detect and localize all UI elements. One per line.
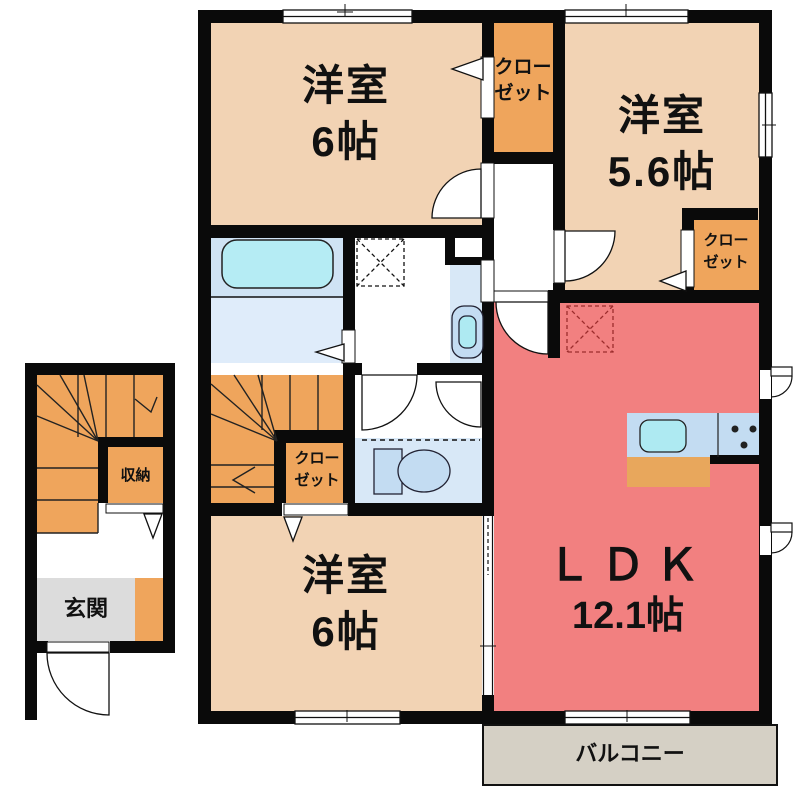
wall <box>548 303 560 358</box>
room-washroom <box>211 297 343 363</box>
entrance-step <box>135 578 163 641</box>
closet-line1: クロー <box>694 230 758 252</box>
wall <box>355 363 362 375</box>
wall <box>211 503 282 516</box>
wall <box>25 363 37 720</box>
label-closet-right: クロー ゼット <box>694 230 758 274</box>
wall <box>274 430 286 503</box>
closet-line1: クロー <box>286 448 348 470</box>
wall <box>163 363 175 653</box>
wall <box>198 711 772 724</box>
room-toilet <box>355 438 482 503</box>
room-size: 5.6帖 <box>542 144 782 200</box>
wall <box>482 10 494 57</box>
wall <box>455 257 494 265</box>
wall <box>25 363 175 375</box>
closet-line1: クロー <box>491 55 555 81</box>
label-bedroom-bottom: 洋室 6帖 <box>226 548 466 660</box>
room-size: 12.1帖 <box>508 592 748 640</box>
label-bedroom-top-right: 洋室 5.6帖 <box>542 88 782 200</box>
wall <box>198 10 211 724</box>
stairs-annex-lower <box>37 437 98 533</box>
kitchen-counter <box>627 413 762 457</box>
wall <box>37 641 48 653</box>
room-size: 6帖 <box>226 604 466 660</box>
closet-line2: ゼット <box>694 252 758 274</box>
wall <box>445 232 455 265</box>
label-entrance: 玄関 <box>37 596 135 622</box>
wall <box>110 641 175 653</box>
wall <box>710 455 762 464</box>
closet-line2: ゼット <box>491 81 555 107</box>
room-name: 洋室 <box>542 88 782 144</box>
wall <box>348 503 494 516</box>
wall <box>417 363 494 375</box>
kitchen-cabinet <box>627 457 710 487</box>
room-name: 洋室 <box>226 548 466 604</box>
room-ldk <box>494 302 759 711</box>
room-name: ＬＤＫ <box>508 540 748 592</box>
washbasin-area <box>450 265 482 363</box>
label-balcony: バルコニー <box>482 741 778 767</box>
wall <box>98 437 108 503</box>
room-bathroom <box>211 238 343 297</box>
label-storage: 収納 <box>108 466 163 486</box>
wall <box>548 290 772 303</box>
stairs-annex-upper <box>37 375 163 437</box>
wall <box>343 232 355 330</box>
wall <box>682 208 694 232</box>
label-closet-top: クロー ゼット <box>491 55 555 107</box>
closet-line2: ゼット <box>286 470 348 492</box>
label-closet-middle: クロー ゼット <box>286 448 348 492</box>
label-ldk: ＬＤＫ 12.1帖 <box>508 540 748 640</box>
room-name: 洋室 <box>226 58 466 114</box>
floor-plan: 洋室 6帖 洋室 5.6帖 洋室 6帖 ＬＤＫ 12.1帖 クロー ゼット クロ… <box>0 0 800 800</box>
room-size: 6帖 <box>226 114 466 170</box>
washing-machine-space <box>357 239 404 286</box>
wall <box>482 695 494 711</box>
label-bedroom-top-left: 洋室 6帖 <box>226 58 466 170</box>
